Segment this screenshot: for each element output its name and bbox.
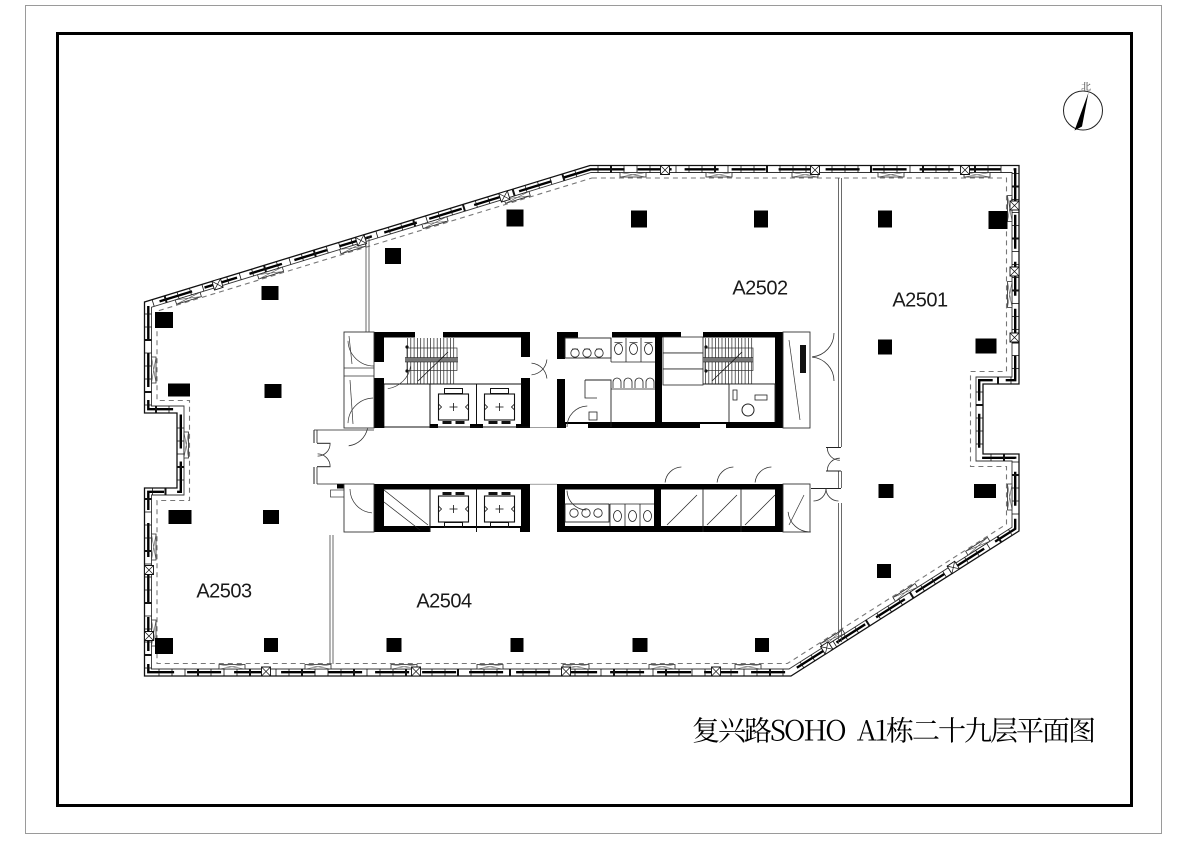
svg-text:A2502: A2502 [732, 278, 788, 300]
svg-text:A2501: A2501 [892, 290, 948, 312]
svg-text:A2503: A2503 [196, 581, 252, 603]
svg-text:A2504: A2504 [416, 591, 472, 613]
